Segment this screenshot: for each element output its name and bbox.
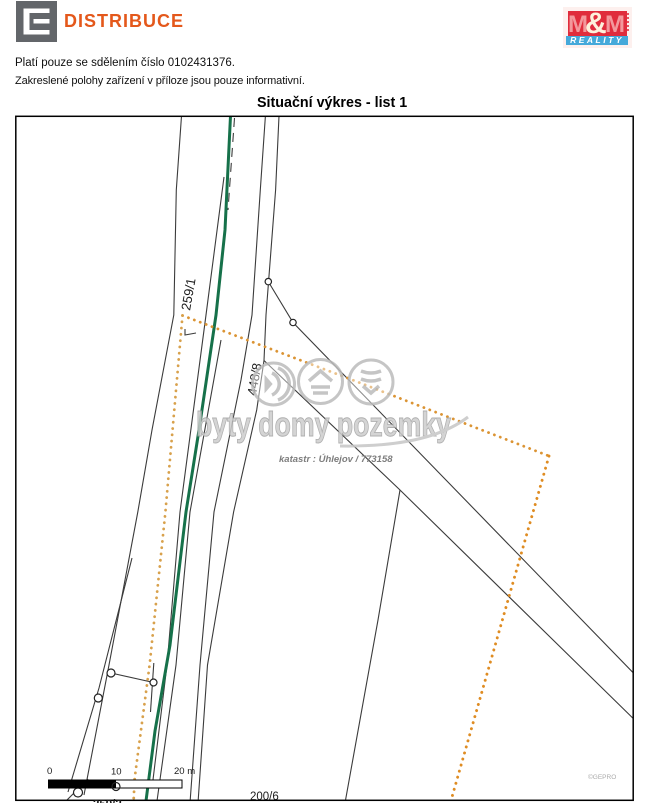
svg-text:0: 0	[47, 766, 52, 777]
svg-text:20 m: 20 m	[174, 766, 195, 777]
svg-text:katastr : Úhlejov / 773158: katastr : Úhlejov / 773158	[279, 453, 393, 465]
svg-text:259/2: 259/2	[93, 799, 122, 803]
svg-text:200/6: 200/6	[250, 791, 279, 803]
svg-text:©GEPRO: ©GEPRO	[588, 773, 616, 781]
svg-text:byty domy pozemky: byty domy pozemky	[196, 406, 451, 444]
svg-text:259/1: 259/1	[178, 277, 198, 312]
svg-text:10: 10	[111, 767, 122, 778]
